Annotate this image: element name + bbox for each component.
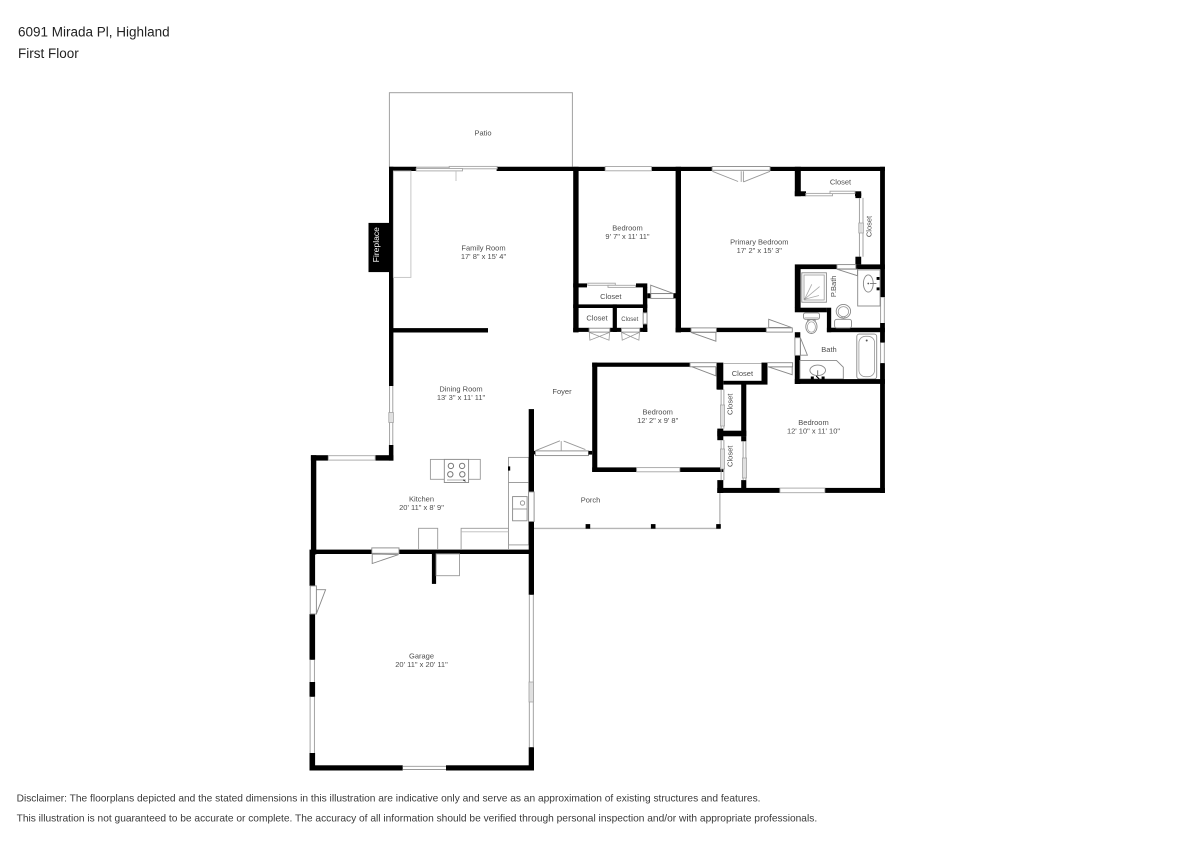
svg-text:12' 2" x 9' 8": 12' 2" x 9' 8": [637, 416, 678, 425]
svg-text:Porch: Porch: [581, 496, 601, 505]
svg-text:Fireplace: Fireplace: [371, 227, 381, 263]
svg-text:Closet: Closet: [621, 317, 638, 323]
svg-text:First Floor: First Floor: [18, 46, 79, 61]
svg-text:6091 Mirada Pl, Highland: 6091 Mirada Pl, Highland: [18, 25, 170, 40]
svg-text:Disclaimer: The floorplans dep: Disclaimer: The floorplans depicted and …: [17, 793, 761, 804]
svg-text:Closet: Closet: [726, 445, 735, 467]
svg-text:Closet: Closet: [732, 369, 754, 378]
svg-text:Foyer: Foyer: [552, 387, 572, 396]
svg-text:P.Bath: P.Bath: [829, 276, 838, 298]
svg-text:This illustration is not guara: This illustration is not guaranteed to b…: [17, 813, 818, 824]
svg-text:17' 2" x 15' 3": 17' 2" x 15' 3": [737, 246, 783, 255]
svg-text:Closet: Closet: [726, 393, 735, 415]
svg-text:Closet: Closet: [830, 178, 852, 187]
svg-text:20' 11" x 20' 11": 20' 11" x 20' 11": [395, 660, 448, 669]
svg-text:Patio: Patio: [474, 128, 491, 137]
svg-text:20' 11" x 8' 9": 20' 11" x 8' 9": [399, 503, 444, 512]
svg-text:9' 7" x 11' 11": 9' 7" x 11' 11": [605, 232, 650, 241]
svg-text:Closet: Closet: [600, 292, 622, 301]
svg-text:12' 10" x 11' 10": 12' 10" x 11' 10": [787, 427, 840, 436]
svg-text:17' 8" x 15' 4": 17' 8" x 15' 4": [461, 252, 507, 261]
svg-text:13' 3" x 11' 11": 13' 3" x 11' 11": [437, 393, 486, 402]
svg-text:Closet: Closet: [586, 314, 608, 323]
svg-text:Closet: Closet: [865, 215, 874, 237]
svg-text:Bath: Bath: [821, 345, 836, 354]
